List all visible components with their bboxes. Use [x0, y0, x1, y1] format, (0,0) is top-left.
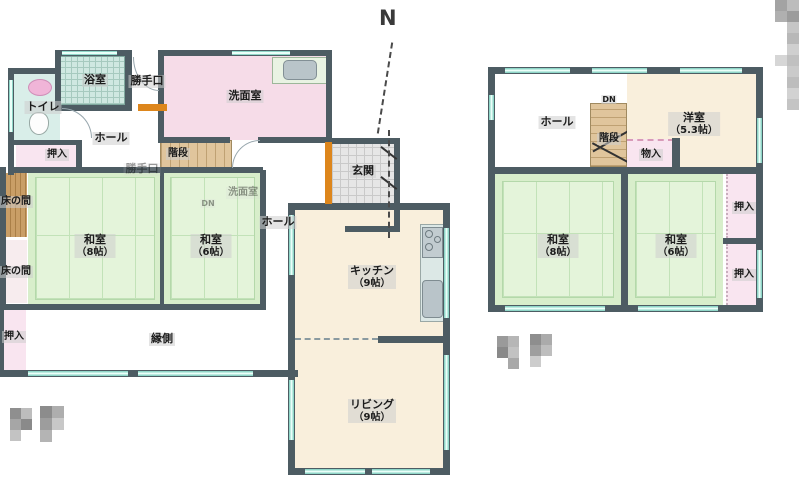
label-hall-2f: ホール: [539, 116, 576, 129]
window: [505, 68, 570, 73]
label-bath: 浴室: [82, 74, 108, 87]
window: [289, 380, 294, 440]
top-right-mosaic: [775, 11, 787, 22]
floor2-label-mosaic: [530, 356, 541, 367]
label-stairs-2f: 階段: [597, 133, 621, 145]
bathroom-door-arc: [62, 108, 92, 138]
floor-plan-canvas: N トイレ 浴室 勝手口 洗面室 ホール 押入 階段 玄関 床の間 床の間 和室…: [0, 0, 800, 485]
floor2-label-mosaic: [508, 358, 519, 369]
north-arrow-dashed-line: [388, 130, 390, 238]
floor2-label-mosaic: [541, 345, 552, 356]
window: [9, 80, 13, 132]
wall: [621, 174, 628, 305]
label-closet-upper: 押入: [45, 149, 69, 161]
window: [680, 68, 742, 73]
floor2-label-mosaic: [508, 336, 519, 347]
window: [505, 306, 605, 311]
wall: [488, 167, 763, 174]
wall: [14, 140, 82, 145]
top-right-mosaic: [775, 55, 787, 66]
wall: [0, 167, 6, 310]
label-closet-lower: 押入: [2, 331, 26, 343]
wall: [160, 137, 230, 143]
label-kitchen: キッチン（9帖）: [348, 265, 396, 289]
label-storage-2f: 物入: [639, 149, 663, 161]
floor1-label-mosaic: [21, 419, 32, 430]
wall: [345, 226, 400, 232]
wall: [723, 238, 763, 244]
wall: [394, 138, 400, 232]
north-indicator-letter: N: [379, 6, 398, 30]
wall: [8, 68, 60, 74]
window: [444, 228, 449, 318]
top-right-mosaic: [787, 11, 799, 22]
wall: [258, 137, 332, 143]
washbasin-sink: [283, 60, 317, 80]
wall: [160, 170, 164, 307]
label-toilet: トイレ: [25, 101, 62, 114]
floor1-label-mosaic: [52, 406, 64, 418]
label-hall-center: ホール: [260, 216, 297, 229]
window: [62, 51, 117, 55]
stove-burner-2: [434, 236, 441, 243]
toilet-tank-oval: [28, 79, 52, 96]
floor2-label-mosaic: [530, 345, 541, 356]
label-engawa: 縁側: [149, 333, 175, 346]
stove-burner-3: [425, 243, 433, 251]
label-hall-upper: ホール: [93, 132, 130, 145]
wall-kitchen-living-divider: [378, 336, 443, 343]
backdoor-threshold: [138, 104, 167, 111]
label-washroom: 洗面室: [227, 90, 264, 103]
label-tokonoma-1: 床の間: [0, 196, 33, 208]
top-right-mosaic: [787, 0, 799, 11]
floor1-label-mosaic: [10, 419, 21, 430]
floor2-label-mosaic: [530, 334, 541, 345]
ghost-label-backdoor: 勝手口: [124, 163, 161, 176]
wall: [260, 170, 266, 310]
stove-burner-1: [425, 230, 433, 238]
label-closet-2f-top: 押入: [732, 202, 756, 214]
floor2-label-mosaic: [541, 334, 552, 345]
label-living: リビング（9帖）: [348, 399, 396, 423]
label-entrance: 玄関: [350, 165, 376, 178]
floor1-label-mosaic: [10, 430, 21, 441]
floor2-label-mosaic: [497, 336, 508, 347]
label-tokonoma-2: 床の間: [0, 266, 33, 278]
top-right-mosaic: [787, 88, 799, 99]
window: [28, 371, 128, 376]
window: [757, 118, 762, 163]
label-washitsu8-2f: 和室（8帖）: [538, 234, 579, 258]
ghost-label-dn: DN: [200, 199, 215, 208]
floor1-label-mosaic: [10, 408, 21, 419]
window: [444, 355, 449, 450]
ghost-label-washroom: 洗面室: [226, 187, 260, 199]
top-right-mosaic: [787, 55, 799, 66]
wall: [288, 203, 450, 210]
top-right-mosaic: [787, 66, 799, 77]
top-right-mosaic: [787, 22, 799, 33]
label-backdoor: 勝手口: [129, 75, 166, 88]
floor1-label-mosaic: [52, 418, 64, 430]
window: [757, 250, 762, 298]
window: [232, 51, 290, 55]
window: [138, 371, 253, 376]
entrance-threshold: [325, 142, 332, 204]
top-right-mosaic: [775, 0, 787, 11]
window: [638, 306, 718, 311]
wall: [672, 138, 680, 171]
floor2-label-mosaic: [508, 347, 519, 358]
washroom-door-arc: [232, 140, 260, 168]
window: [372, 469, 430, 474]
top-right-mosaic: [787, 33, 799, 44]
top-right-mosaic: [787, 99, 799, 110]
north-arrow-dashed-line: [377, 42, 393, 133]
floor1-label-mosaic: [21, 408, 32, 419]
kitchen-sink: [422, 280, 443, 318]
label-washitsu8-1f: 和室（8帖）: [75, 234, 116, 258]
floor1-label-mosaic: [40, 406, 52, 418]
label-closet-2f-bottom: 押入: [732, 269, 756, 281]
label-washitsu6-1f: 和室（6帖）: [191, 234, 232, 258]
window: [489, 95, 494, 120]
label-stairs-1f: 階段: [166, 148, 190, 160]
floor1-label-mosaic: [40, 418, 52, 430]
window: [592, 68, 647, 73]
wall: [326, 50, 332, 143]
floor1-label-mosaic: [40, 430, 52, 442]
toilet-bowl: [29, 112, 49, 135]
top-right-mosaic: [787, 77, 799, 88]
wall: [0, 304, 266, 310]
label-dn-2f: DN: [601, 95, 616, 104]
kitchen-living-dashed-line: [295, 338, 378, 340]
window: [305, 469, 365, 474]
top-right-mosaic: [787, 44, 799, 55]
label-washitsu6-2f: 和室（6帖）: [656, 234, 697, 258]
floor2-label-mosaic: [497, 347, 508, 358]
label-youshitsu: 洋室（5.3帖）: [668, 112, 720, 136]
